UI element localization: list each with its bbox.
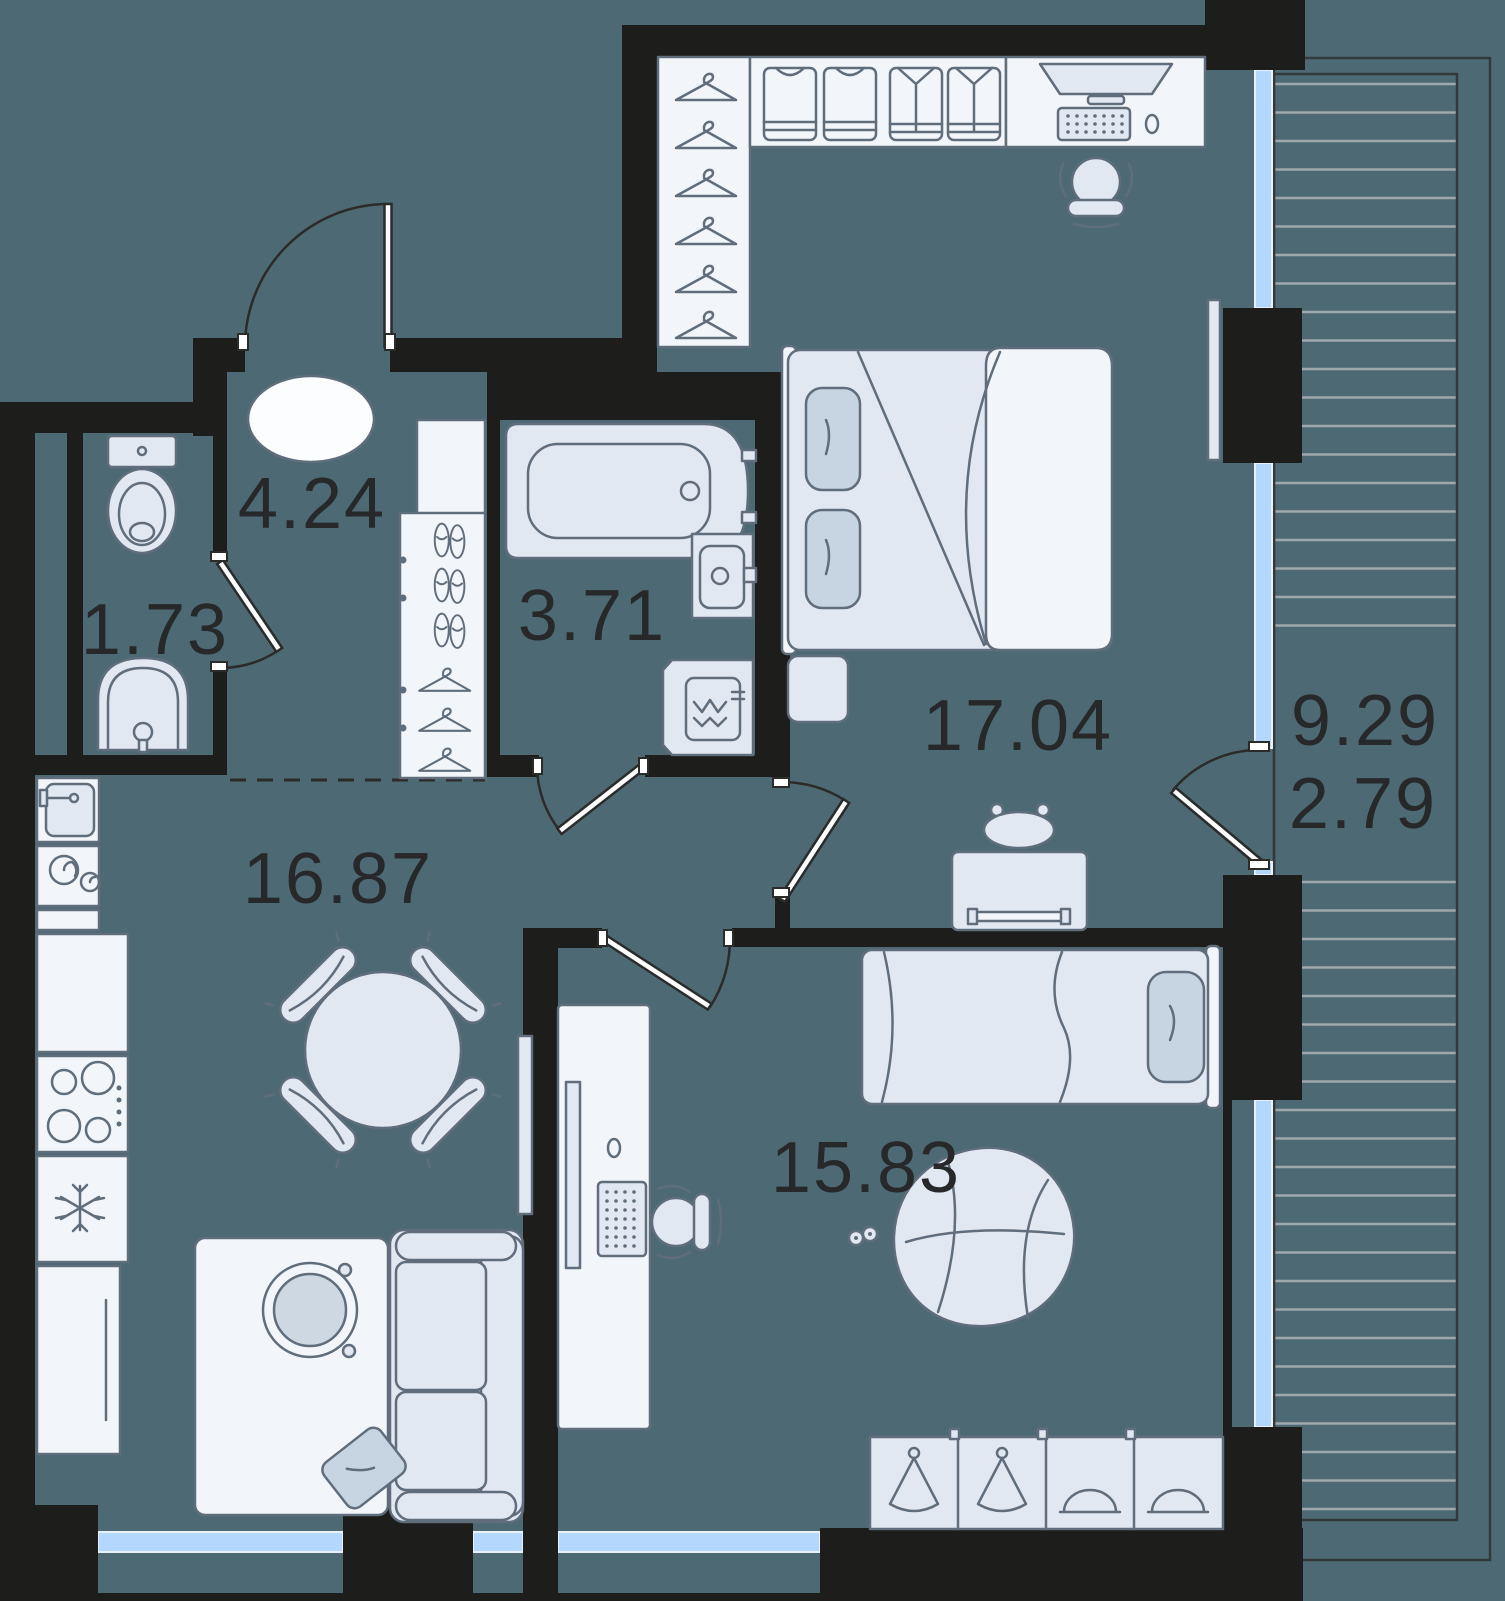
bedroom-desk bbox=[1006, 57, 1205, 147]
sofa-armrest bbox=[396, 1232, 516, 1260]
living-window bbox=[98, 1532, 343, 1552]
coffee-table bbox=[263, 1263, 357, 1357]
hallway-rug bbox=[248, 376, 374, 462]
double-bed bbox=[782, 346, 1112, 654]
bedroom2-wardrobe bbox=[870, 1429, 1223, 1529]
washing-machine bbox=[663, 660, 753, 755]
dining-table bbox=[305, 972, 461, 1128]
blanket bbox=[986, 348, 1112, 650]
living-window-2 bbox=[473, 1532, 523, 1552]
kitchen-base-cabinet bbox=[37, 934, 128, 1052]
room-label-bedroom: 17.04 bbox=[923, 686, 1113, 766]
bedroom2-desk bbox=[558, 1005, 650, 1429]
hallway-mirror-panel bbox=[417, 420, 485, 515]
kitchen-hob bbox=[37, 1056, 128, 1152]
living-tv bbox=[518, 1036, 532, 1214]
apartment-floor-plan: 1.73 4.24 3.71 17.04 16.87 15.83 9.29 2.… bbox=[0, 0, 1505, 1601]
kitchen-small-hob bbox=[37, 846, 99, 906]
nightstand bbox=[788, 656, 848, 722]
single-bed bbox=[862, 946, 1220, 1108]
kitchen-sink bbox=[37, 778, 99, 842]
sofa-seat bbox=[396, 1392, 486, 1490]
keyboard-icon bbox=[598, 1182, 646, 1256]
monitor-icon bbox=[1040, 64, 1172, 94]
pillow bbox=[806, 388, 860, 490]
sofa-armrest bbox=[396, 1492, 516, 1520]
closet-shelf-section bbox=[750, 57, 1006, 147]
room-label-wc: 1.73 bbox=[81, 590, 229, 670]
kitchen-worktop bbox=[37, 910, 99, 930]
bedroom-tv bbox=[1208, 300, 1220, 460]
room-label-hallway: 4.24 bbox=[238, 464, 386, 544]
room-label-living: 16.87 bbox=[243, 839, 433, 919]
pillow bbox=[1148, 972, 1204, 1082]
dresser bbox=[952, 852, 1087, 930]
toilet bbox=[108, 436, 176, 553]
sofa-backrest bbox=[481, 1236, 523, 1516]
kitchen-tall-cabinet bbox=[37, 1266, 120, 1454]
room-label-bedroom2: 15.83 bbox=[771, 1128, 961, 1208]
wc-sink bbox=[98, 658, 188, 752]
room-label-balcony-reduced: 2.79 bbox=[1289, 764, 1437, 844]
sofa-seat bbox=[396, 1262, 486, 1390]
bedroom2-window bbox=[558, 1532, 820, 1552]
fridge bbox=[37, 1156, 128, 1262]
shoe-cabinet bbox=[400, 513, 486, 778]
room-label-balcony-total: 9.29 bbox=[1291, 681, 1439, 761]
bathroom-sink bbox=[692, 534, 756, 618]
room-label-bathroom: 3.71 bbox=[518, 576, 666, 656]
pillow bbox=[806, 510, 860, 608]
keyboard-icon bbox=[1058, 108, 1130, 140]
floor-plan-canvas: 1.73 4.24 3.71 17.04 16.87 15.83 9.29 2.… bbox=[0, 0, 1505, 1601]
monitor-icon bbox=[566, 1082, 580, 1268]
